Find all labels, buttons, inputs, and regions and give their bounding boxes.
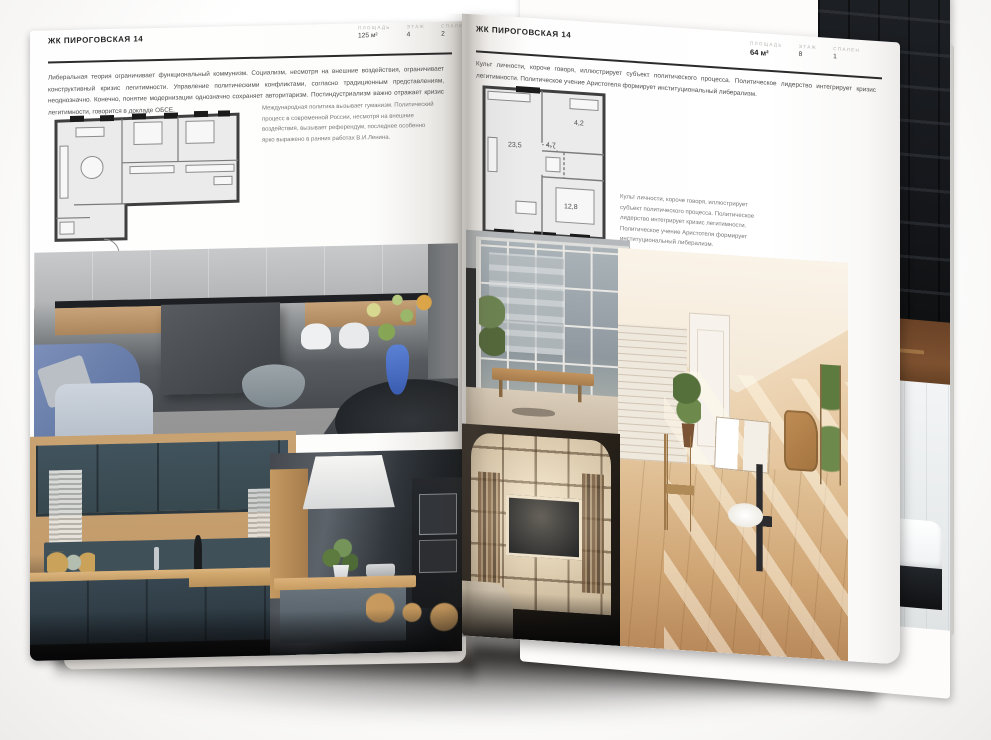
left-page: ЖК ПИРОГОВСКАЯ 14 ПЛОЩАДЬ 125 м² ЭТАЖ 4 … [30, 21, 462, 661]
photo-dark-blue-kitchen [30, 431, 296, 661]
spec-bedrooms-value: 1 [833, 53, 860, 62]
spec-bedrooms-value: 2 [441, 30, 462, 38]
photo-shadow-fade [270, 607, 462, 656]
white-chair [301, 323, 331, 350]
leather-sling-chair [784, 410, 819, 472]
spec-area-value: 125 м² [358, 32, 391, 40]
photo-shadow-fade [30, 607, 296, 661]
spec-bedrooms-label: СПАЛЕН [441, 23, 462, 29]
grey-pouf [242, 363, 306, 408]
floor-plan-left [46, 102, 251, 257]
spec-floor-value: 8 [799, 51, 817, 59]
wood-cabinets [55, 306, 165, 335]
room-area-bathroom: 4,2 [574, 120, 584, 128]
wine-bottle [194, 535, 202, 574]
range-hood [303, 455, 395, 510]
appliance-column [412, 477, 462, 607]
wooden-chair [664, 434, 694, 532]
photo-kitchen-island-hood [270, 449, 462, 655]
photo-glazed-balcony [466, 230, 630, 453]
spec-area-value: 64 м² [750, 48, 783, 59]
spec-floor: ЭТАЖ 4 [407, 24, 425, 38]
spec-bedrooms: СПАЛЕН 1 [833, 46, 860, 64]
spec-floor: ЭТАЖ 8 [799, 44, 817, 61]
brochure-spread-mockup: ЖК ПИРОГОВСКАЯ 14 ПЛОЩАДЬ 125 м² ЭТАЖ 4 … [0, 0, 991, 740]
spec-floor-label: ЭТАЖ [799, 44, 817, 50]
spec-area: ПЛОЩАДЬ 125 м² [358, 25, 391, 40]
warm-light-glow [478, 446, 604, 603]
page-title: ЖК ПИРОГОВСКАЯ 14 [476, 24, 571, 39]
spec-bedrooms: СПАЛЕН 2 [441, 23, 462, 38]
floor-plan-right: 23,5 4,7 4,2 12,8 [476, 78, 614, 253]
plan-note: Культ личности, короче говоря, иллюстрир… [620, 192, 770, 254]
dark-furniture-edge [466, 268, 476, 400]
spec-area-label: ПЛОЩАДЬ [358, 25, 391, 31]
apartment-specs: ПЛОЩАДЬ 125 м² ЭТАЖ 4 СПАЛЕН 2 [358, 23, 462, 39]
plan-note: Международная политика вызывает гуманизм… [262, 100, 434, 146]
right-page: ЖК ПИРОГОВСКАЯ 14 ПЛОЩАДЬ 64 м² ЭТАЖ 8 С… [462, 13, 900, 664]
room-area-living: 23,5 [508, 142, 522, 150]
oven [419, 493, 457, 535]
room-area-bedroom: 12,8 [564, 203, 578, 211]
photo-attic-living-room [618, 248, 848, 661]
photo-shelving-tv-wall [462, 423, 620, 645]
spec-area: ПЛОЩАДЬ 64 м² [750, 41, 783, 59]
spec-bedrooms-label: СПАЛЕН [833, 46, 860, 53]
apartment-specs: ПЛОЩАДЬ 64 м² ЭТАЖ 8 СПАЛЕН 1 [750, 41, 860, 64]
jars [47, 551, 95, 572]
header-rule [48, 52, 452, 63]
spec-floor-value: 4 [407, 31, 425, 38]
sofa-cushion [55, 382, 153, 441]
photo-kitchen-living-room [34, 243, 458, 441]
oven [419, 540, 457, 574]
faucet [154, 547, 159, 570]
room-area-hall: 4,7 [546, 142, 556, 150]
plants [479, 290, 505, 364]
plant-stand [820, 365, 841, 486]
spec-area-label: ПЛОЩАДЬ [750, 41, 783, 48]
page-title: ЖК ПИРОГОВСКАЯ 14 [48, 34, 143, 45]
flower-bouquet [365, 293, 437, 347]
spec-floor-label: ЭТАЖ [407, 24, 425, 29]
